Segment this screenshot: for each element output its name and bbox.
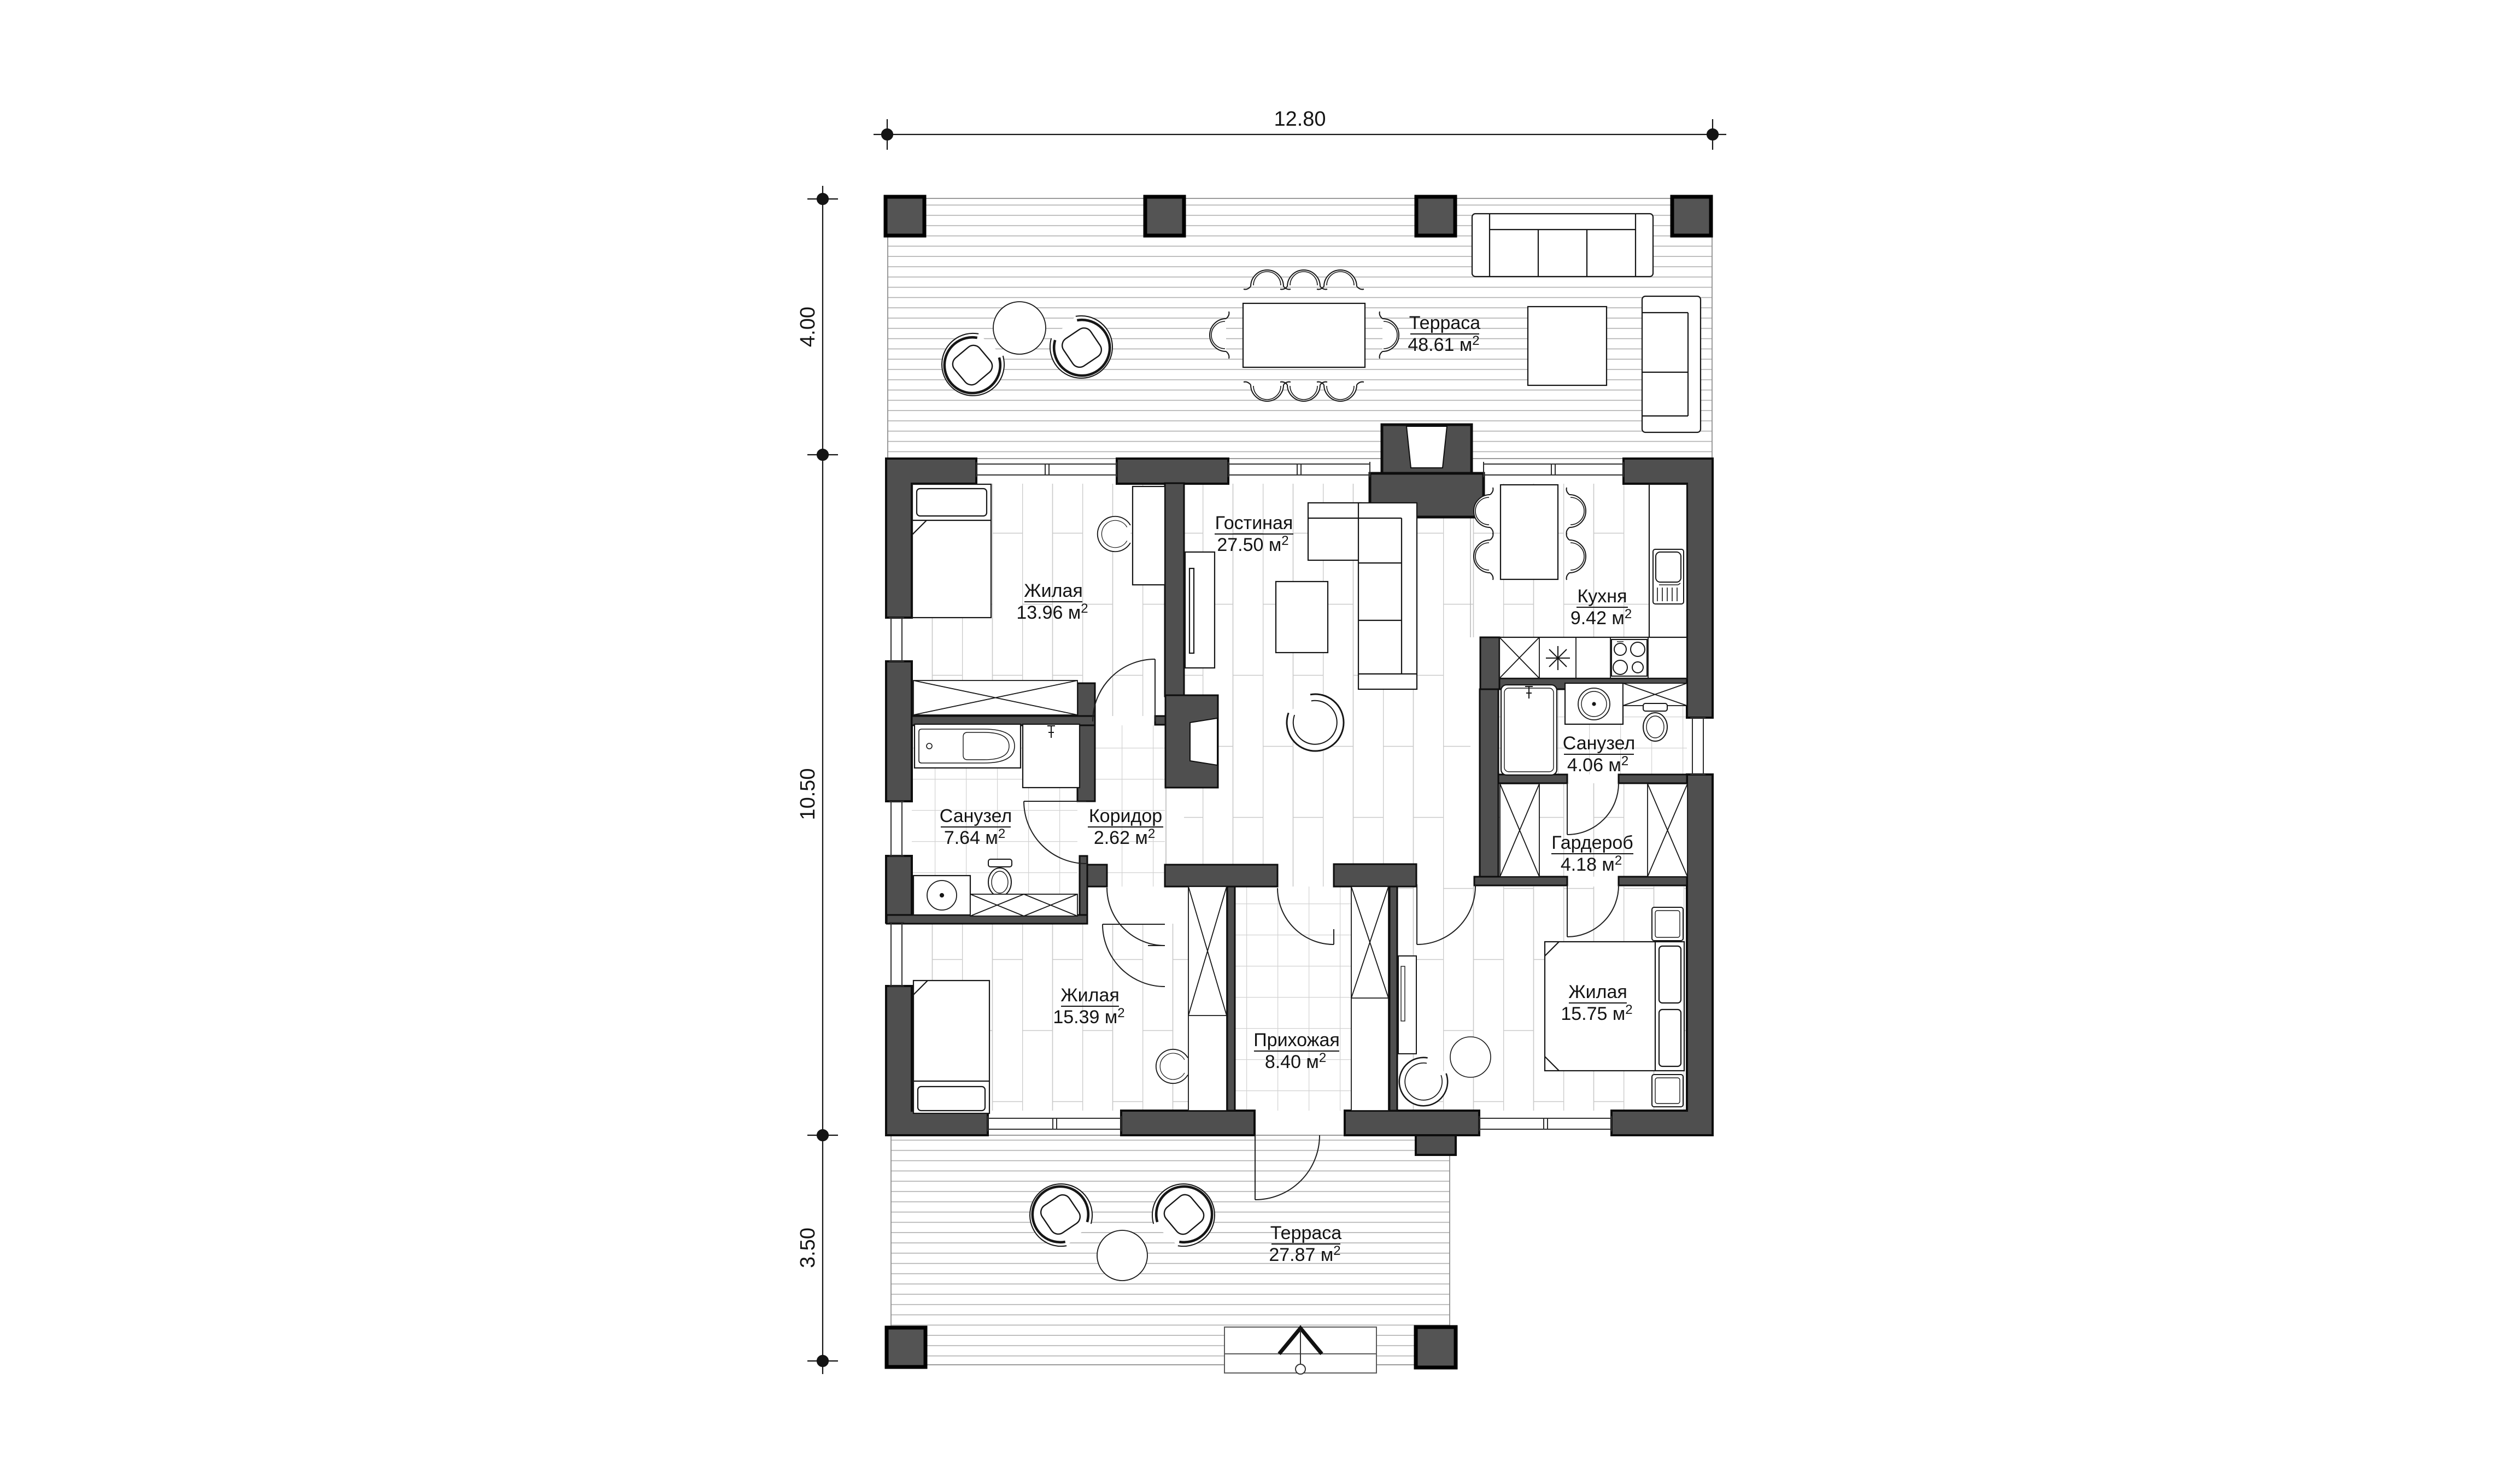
svg-text:Терраса: Терраса xyxy=(1409,313,1480,333)
svg-text:4.18 м2: 4.18 м2 xyxy=(1561,853,1622,875)
svg-text:Терраса: Терраса xyxy=(1270,1223,1341,1243)
svg-text:48.61 м2: 48.61 м2 xyxy=(1408,333,1479,355)
svg-text:4.06 м2: 4.06 м2 xyxy=(1567,754,1628,776)
svg-text:Жилая: Жилая xyxy=(1024,580,1083,601)
svg-text:Жилая: Жилая xyxy=(1568,982,1627,1002)
svg-text:Коридор: Коридор xyxy=(1089,806,1162,826)
svg-text:Гостиная: Гостиная xyxy=(1215,513,1293,533)
svg-text:27.50 м2: 27.50 м2 xyxy=(1217,533,1288,555)
svg-text:Санузел: Санузел xyxy=(940,806,1012,826)
svg-text:7.64 м2: 7.64 м2 xyxy=(944,826,1005,848)
svg-text:Прихожая: Прихожая xyxy=(1253,1030,1340,1051)
svg-text:2.62 м2: 2.62 м2 xyxy=(1094,826,1155,848)
svg-text:Гардероб: Гардероб xyxy=(1551,832,1633,853)
svg-text:15.75 м2: 15.75 м2 xyxy=(1561,1002,1632,1024)
svg-text:8.40 м2: 8.40 м2 xyxy=(1265,1051,1326,1072)
svg-text:15.39 м2: 15.39 м2 xyxy=(1053,1006,1124,1028)
svg-text:10.50: 10.50 xyxy=(796,768,819,820)
svg-text:Жилая: Жилая xyxy=(1060,985,1120,1006)
svg-text:27.87 м2: 27.87 м2 xyxy=(1269,1243,1340,1265)
svg-text:4.00: 4.00 xyxy=(796,307,819,347)
svg-text:13.96 м2: 13.96 м2 xyxy=(1016,601,1088,623)
svg-text:9.42 м2: 9.42 м2 xyxy=(1570,607,1632,629)
svg-text:3.50: 3.50 xyxy=(796,1228,819,1268)
svg-text:Кухня: Кухня xyxy=(1578,586,1627,607)
svg-text:Санузел: Санузел xyxy=(1563,733,1635,754)
svg-text:12.80: 12.80 xyxy=(1274,108,1326,131)
